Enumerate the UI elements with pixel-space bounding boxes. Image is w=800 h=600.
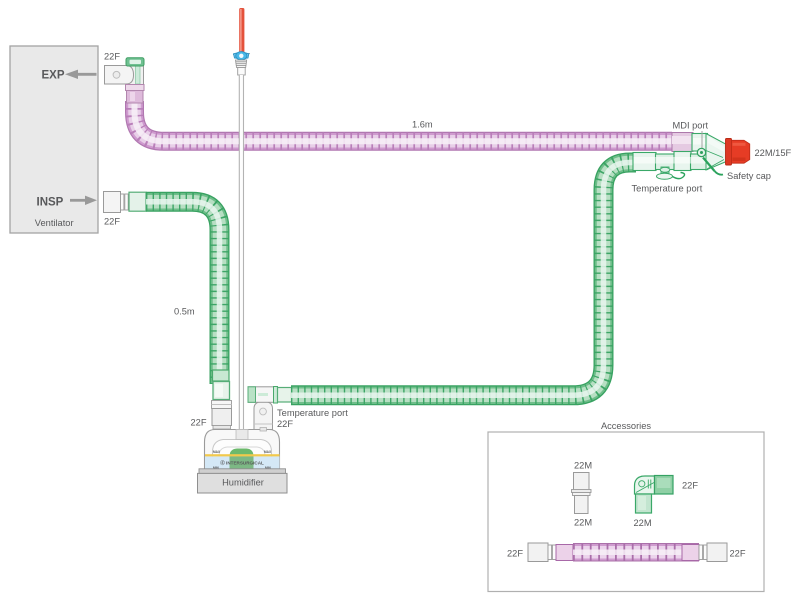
svg-text:0.5m: 0.5m xyxy=(174,307,195,317)
svg-text:22F: 22F xyxy=(507,549,523,559)
svg-text:Temperature port: Temperature port xyxy=(632,184,703,194)
svg-text:MDI port: MDI port xyxy=(673,121,709,131)
svg-text:INSP: INSP xyxy=(37,197,64,209)
svg-text:22F: 22F xyxy=(277,419,293,429)
svg-text:EXP: EXP xyxy=(42,70,65,82)
svg-text:Accessories: Accessories xyxy=(601,421,651,431)
svg-text:22F: 22F xyxy=(730,549,746,559)
svg-text:1.6m: 1.6m xyxy=(412,120,433,130)
svg-text:22F: 22F xyxy=(104,51,120,61)
svg-text:Temperature port: Temperature port xyxy=(277,408,348,418)
svg-text:Ventilator: Ventilator xyxy=(35,218,74,228)
svg-text:Safety cap: Safety cap xyxy=(727,171,771,181)
svg-text:22F: 22F xyxy=(191,418,207,428)
svg-text:Ⓢ INTERSURGICAL: Ⓢ INTERSURGICAL xyxy=(220,460,264,467)
svg-text:22F: 22F xyxy=(104,217,120,227)
svg-text:Humidifier: Humidifier xyxy=(222,478,264,488)
svg-text:22M: 22M xyxy=(574,461,592,471)
svg-text:22F: 22F xyxy=(682,480,698,490)
svg-text:22M: 22M xyxy=(634,518,652,528)
svg-text:22M: 22M xyxy=(574,517,592,527)
svg-text:22M/15F: 22M/15F xyxy=(755,148,792,158)
svg-text:MAX: MAX xyxy=(264,450,272,454)
svg-text:MAX: MAX xyxy=(213,450,221,454)
